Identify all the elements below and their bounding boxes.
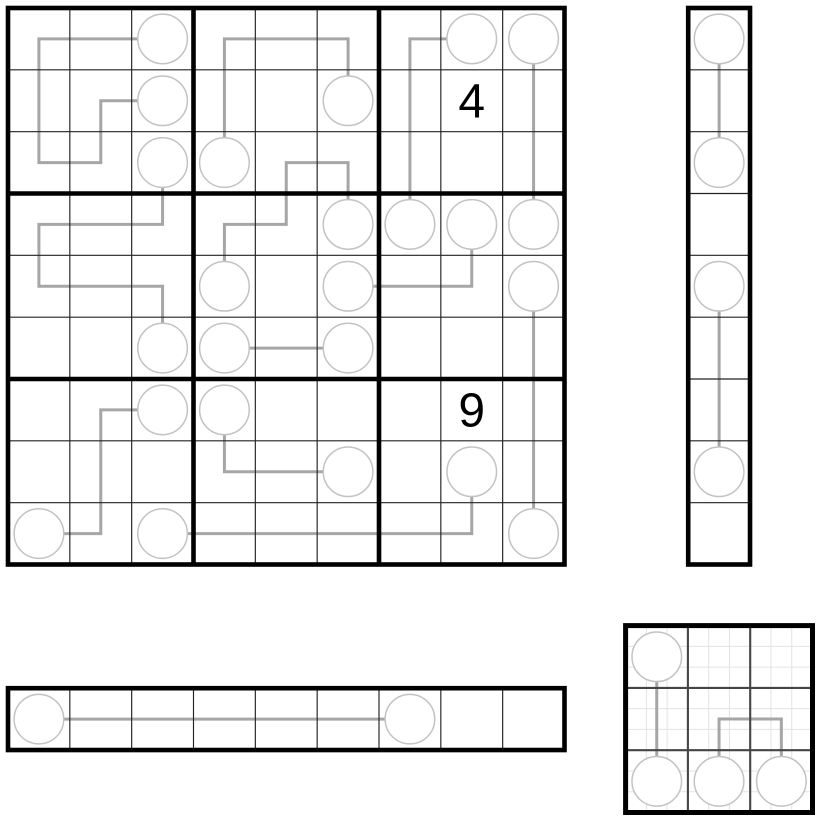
svg-text:4: 4 — [458, 75, 485, 128]
svg-text:9: 9 — [458, 385, 485, 438]
